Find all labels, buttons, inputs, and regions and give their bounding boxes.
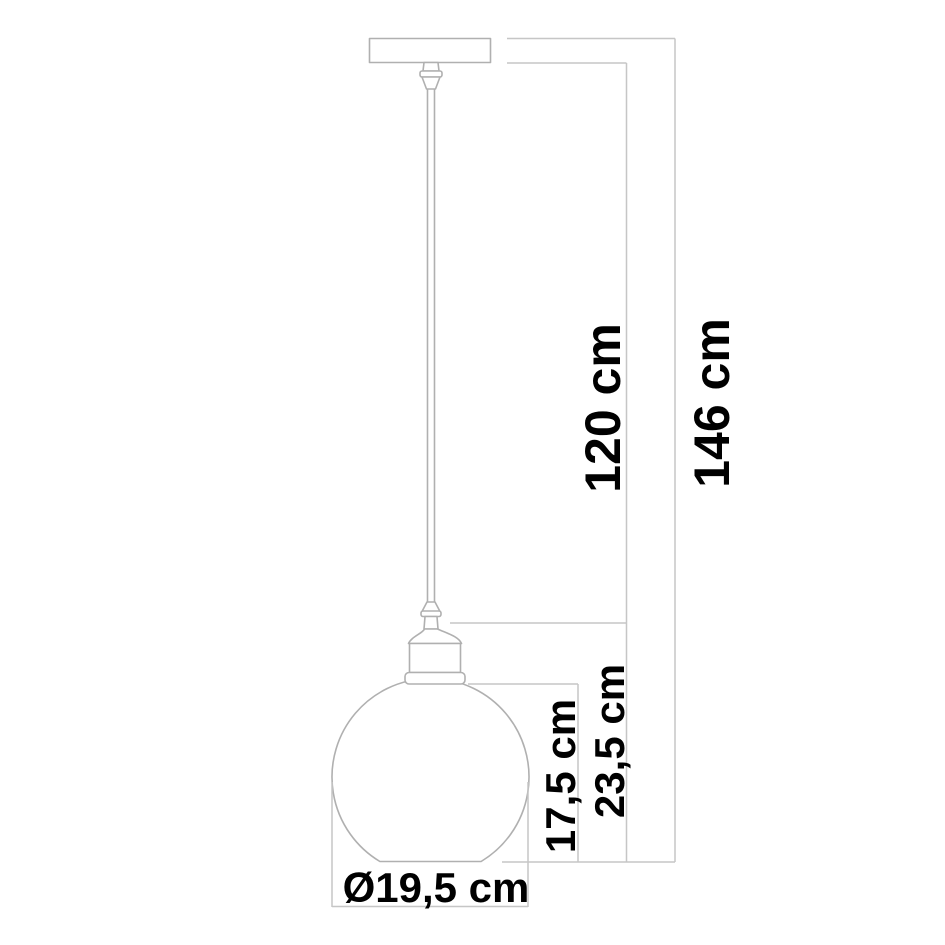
top-cord-grip-nipple: [423, 63, 439, 72]
top-cord-grip-cone: [422, 77, 440, 89]
dimension-drawing: 120 cm 146 cm 17,5 cm 23,5 cm Ø19,5 cm: [0, 0, 945, 945]
socket-body: [410, 644, 461, 673]
socket-base-ring: [405, 673, 465, 685]
dim-label-total-height: 146 cm: [684, 318, 740, 488]
socket-cap: [409, 629, 462, 644]
lower-cord-grip-ring: [421, 611, 441, 617]
lower-cord-grip-cone: [422, 602, 440, 612]
dim-label-cord-drop: 120 cm: [575, 323, 631, 493]
socket-neck: [424, 617, 438, 630]
dim-label-diameter: Ø19,5 cm: [343, 864, 530, 911]
cord: [428, 89, 435, 603]
lamp-drawing: [332, 39, 529, 862]
pendant-lamp-diagram: 120 cm 146 cm 17,5 cm 23,5 cm Ø19,5 cm: [0, 0, 945, 945]
dim-label-shade-height: 23,5 cm: [586, 664, 633, 818]
dim-label-glass-height: 17,5 cm: [537, 699, 584, 853]
glass-globe: [332, 678, 529, 861]
ceiling-plate: [370, 39, 491, 63]
top-cord-grip-ring: [420, 71, 442, 77]
